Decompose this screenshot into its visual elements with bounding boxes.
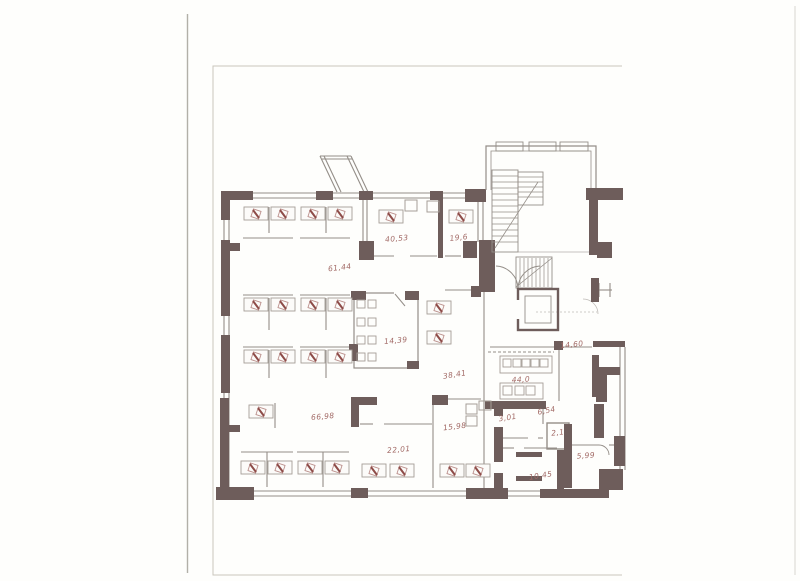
wall-segment: [463, 241, 477, 258]
wall-segment: [221, 335, 230, 393]
door-opening: [493, 462, 504, 473]
room-area-label: 19,6: [449, 232, 468, 243]
wall-segment: [465, 189, 486, 202]
wall-segment: [471, 286, 481, 297]
floor-plan-svg: 40,5319,661,4414,3938,4144,014,6066,9822…: [0, 0, 800, 581]
room-area-label: 44,0: [511, 375, 530, 385]
wall-segment: [229, 243, 240, 251]
wall-segment: [564, 424, 572, 488]
wall-segment: [351, 291, 366, 300]
wall-segment: [516, 452, 542, 457]
wall-segment: [605, 367, 620, 375]
wall-segment: [597, 242, 612, 258]
wall-segment: [599, 469, 623, 490]
wall-segment: [351, 488, 368, 498]
wall-segment: [316, 191, 333, 200]
wall-segment: [359, 191, 373, 200]
wall-segment: [593, 341, 625, 347]
wall-segment: [405, 291, 419, 300]
wall-segment: [221, 240, 230, 316]
wall-segment: [226, 425, 240, 432]
wall-segment: [540, 489, 609, 498]
elevator-door-opening: [515, 300, 520, 319]
wall-segment: [557, 450, 564, 497]
room-area-label: 2,1: [551, 427, 565, 437]
wall-segment: [479, 240, 495, 292]
wall-segment: [591, 278, 599, 302]
room-area-label: 5,99: [576, 450, 595, 460]
wall-segment: [221, 191, 230, 220]
wall-segment: [359, 241, 374, 260]
wall-segment: [351, 397, 359, 427]
wall-segment: [589, 200, 598, 255]
wall-segment: [216, 487, 254, 500]
wall-segment: [407, 361, 419, 369]
wall-segment: [586, 188, 623, 200]
scanned-floor-plan-page: 40,5319,661,4414,3938,4144,014,6066,9822…: [0, 0, 800, 581]
wall-segment: [220, 398, 229, 490]
wall-segment: [432, 395, 448, 405]
wall-segment: [594, 404, 604, 438]
wall-segment: [614, 436, 625, 466]
